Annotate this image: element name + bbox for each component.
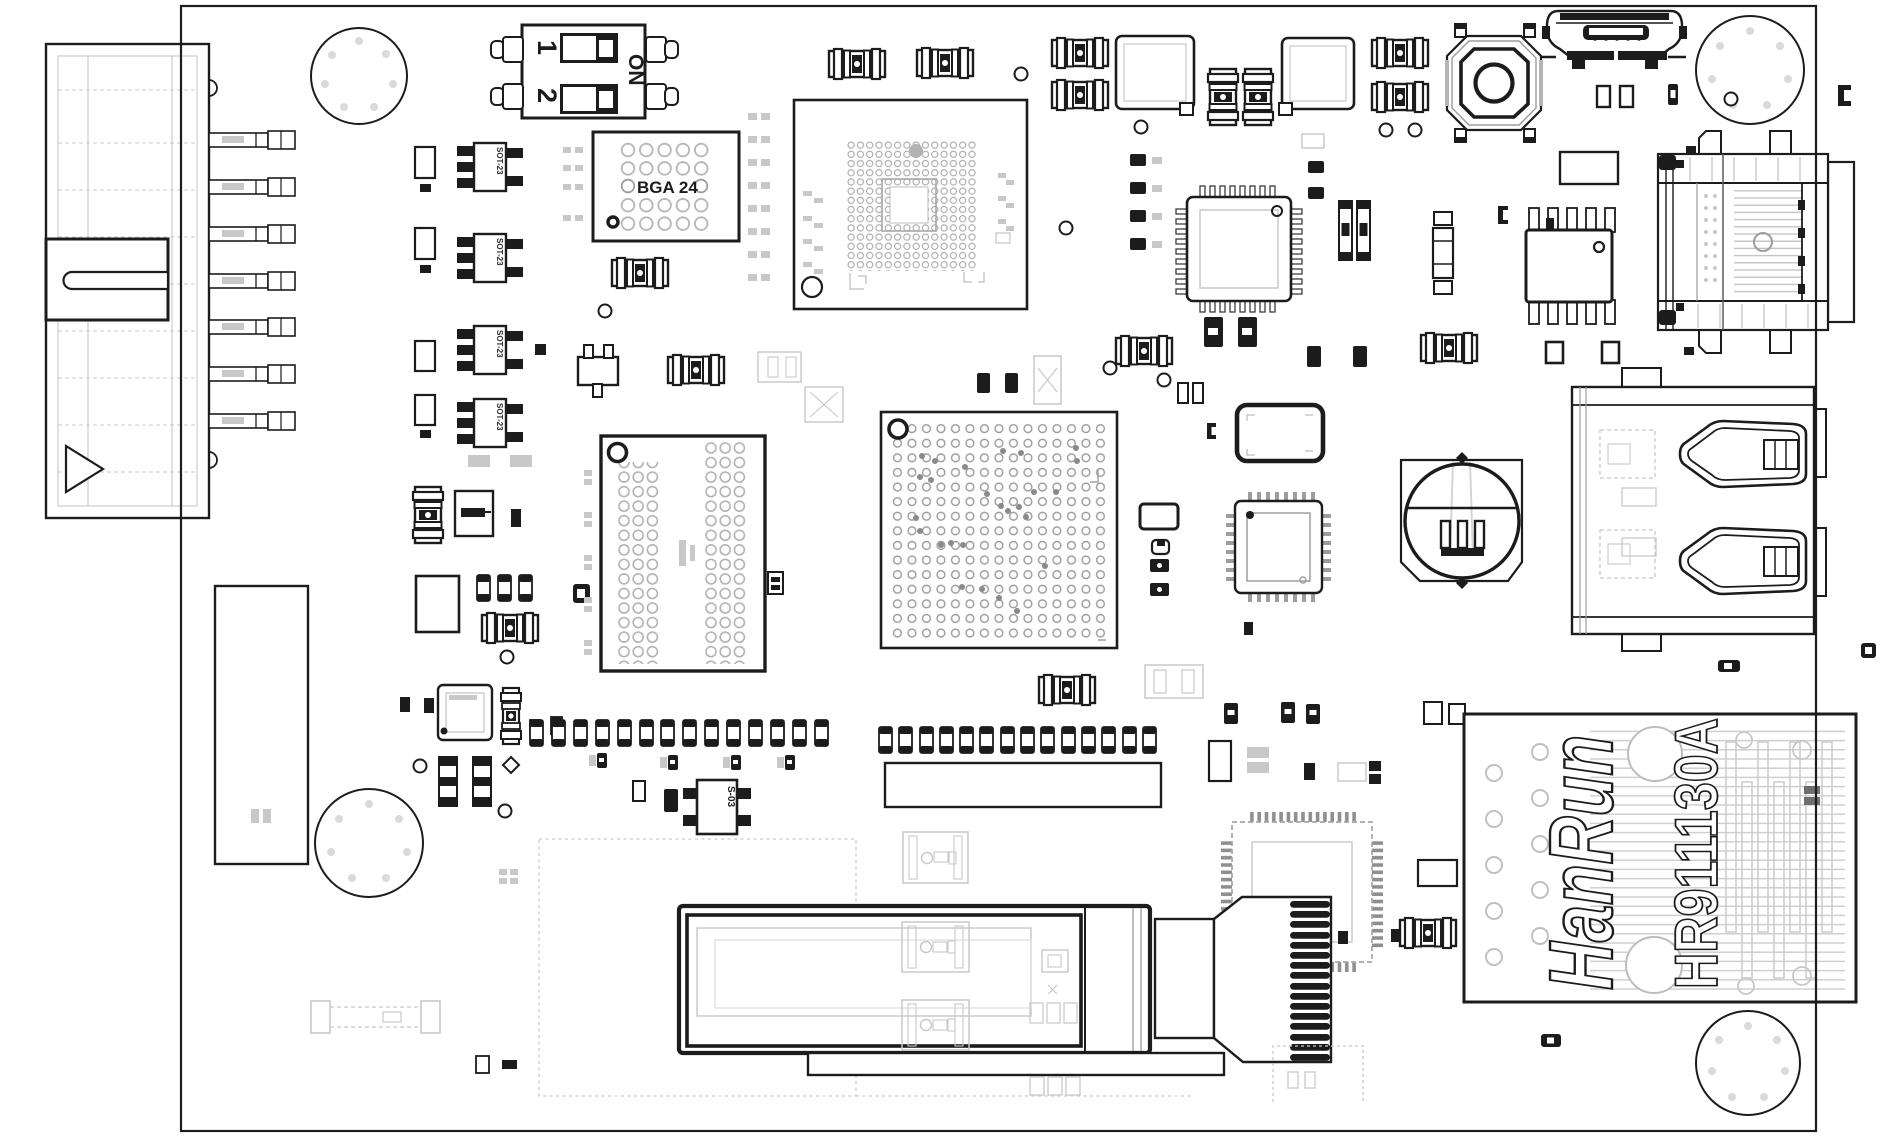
svg-text:ON: ON	[624, 54, 647, 86]
svg-text:BGA 24: BGA 24	[637, 178, 698, 197]
svg-text:2: 2	[532, 88, 562, 103]
svg-text:1: 1	[532, 40, 562, 55]
svg-text:S-03: S-03	[725, 786, 736, 808]
svg-text:HR911130A: HR911130A	[1663, 718, 1730, 989]
svg-text:HanRun: HanRun	[1532, 735, 1632, 990]
